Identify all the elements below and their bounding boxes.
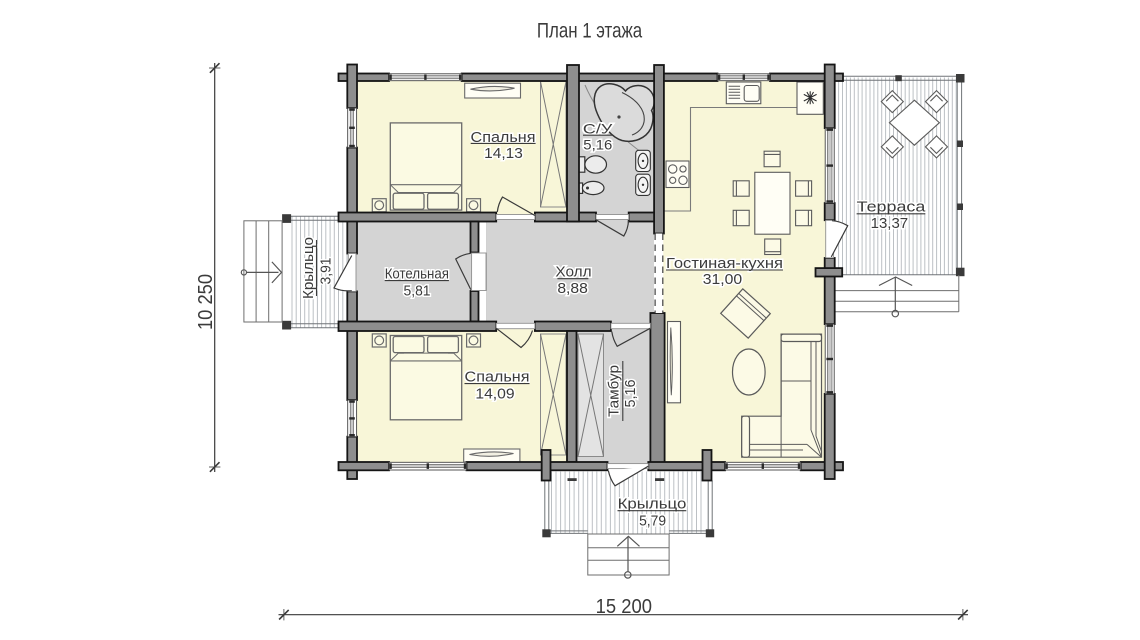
svg-text:Спальня: Спальня xyxy=(465,369,530,386)
svg-text:5,16: 5,16 xyxy=(583,137,612,153)
svg-text:Крыльцо: Крыльцо xyxy=(618,496,687,513)
svg-text:5,81: 5,81 xyxy=(404,283,431,300)
svg-text:Холл: Холл xyxy=(555,264,591,281)
svg-text:8,88: 8,88 xyxy=(557,280,588,297)
svg-text:14,09: 14,09 xyxy=(475,386,514,403)
svg-text:Терраса: Терраса xyxy=(857,199,926,216)
svg-text:Тамбур: Тамбур xyxy=(606,365,623,417)
svg-text:План 1 этажа: План 1 этажа xyxy=(537,19,642,43)
svg-text:Котельная: Котельная xyxy=(385,266,449,283)
svg-text:Крыльцо: Крыльцо xyxy=(300,237,317,299)
svg-text:14,13: 14,13 xyxy=(484,145,523,162)
svg-text:10 250: 10 250 xyxy=(195,274,217,330)
svg-text:5,16: 5,16 xyxy=(622,380,639,408)
svg-text:13,37: 13,37 xyxy=(871,215,909,232)
svg-text:3,91: 3,91 xyxy=(318,258,335,285)
svg-text:15 200: 15 200 xyxy=(596,596,652,618)
svg-text:31,00: 31,00 xyxy=(703,271,742,288)
svg-text:С/У: С/У xyxy=(583,121,612,137)
svg-text:5,79: 5,79 xyxy=(639,513,666,530)
